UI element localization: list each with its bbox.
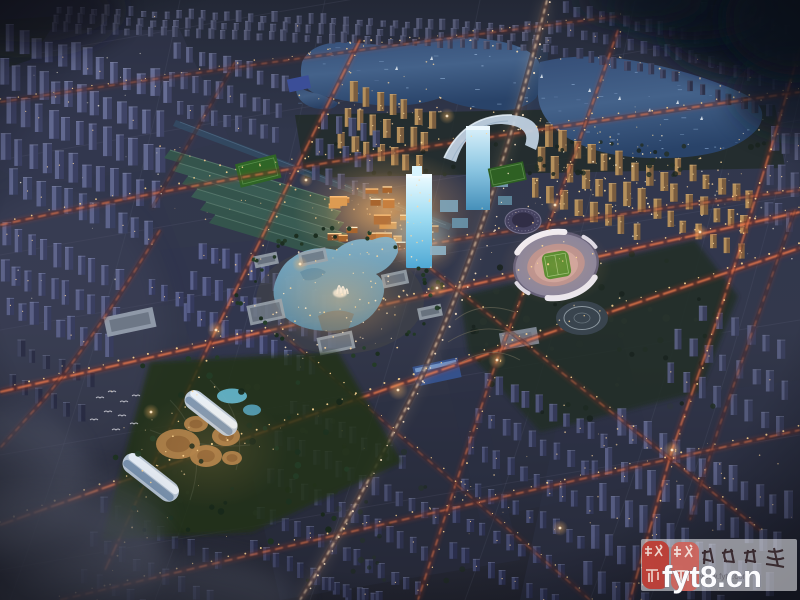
svg-text:fyt8.cn: fyt8.cn (662, 559, 762, 594)
